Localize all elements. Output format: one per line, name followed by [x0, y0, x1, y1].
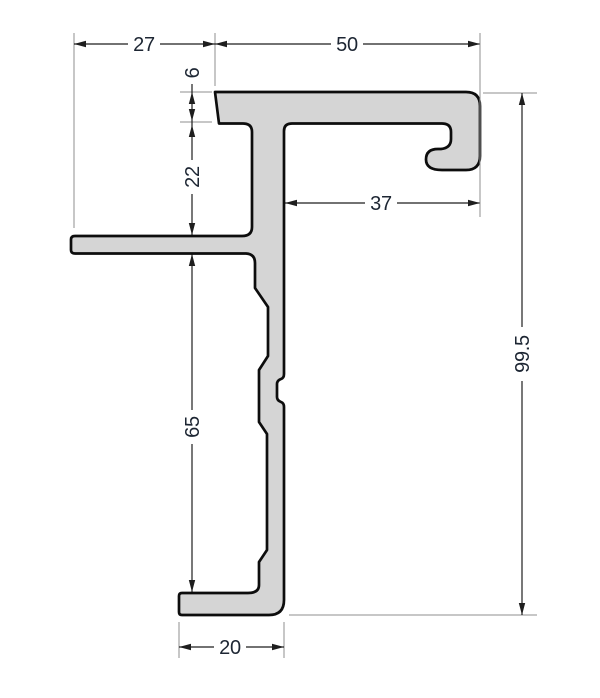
arrow-22-up [189, 125, 195, 137]
dim-label-hook-offset-width: 37 [370, 193, 392, 215]
drawing-canvas: 27 50 6 22 37 65 99.5 20 [0, 0, 600, 698]
dim-label-left-fin-overhang: 27 [133, 34, 155, 56]
arrow-99-up [519, 93, 525, 105]
profile-technical-drawing: 27 50 6 22 37 65 99.5 20 [0, 0, 600, 698]
arrow-6-up [189, 92, 195, 104]
dim-label-flange-thickness: 6 [182, 67, 204, 78]
arrow-50-right [468, 41, 480, 47]
arrow-99-down [519, 603, 525, 615]
arrow-20-right [272, 644, 284, 650]
arrow-65-down [189, 580, 195, 592]
dim-label-bottom-foot-width: 20 [219, 637, 241, 659]
arrow-65-up [189, 254, 195, 266]
arrow-50-left [215, 41, 227, 47]
arrow-20-left [179, 644, 191, 650]
dim-label-overall-height: 99.5 [512, 335, 534, 373]
arrow-22-down [189, 223, 195, 235]
dim-label-flange-to-fin-gap: 22 [182, 166, 204, 188]
arrow-6-down [189, 109, 195, 121]
arrow-27-right [203, 41, 215, 47]
arrow-37-right [468, 200, 480, 206]
dim-label-top-flange-width: 50 [336, 34, 358, 56]
arrow-27-left [74, 41, 86, 47]
arrow-37-left [285, 200, 297, 206]
profile-shape [71, 92, 480, 615]
dim-label-fin-to-foot-height: 65 [182, 416, 204, 438]
